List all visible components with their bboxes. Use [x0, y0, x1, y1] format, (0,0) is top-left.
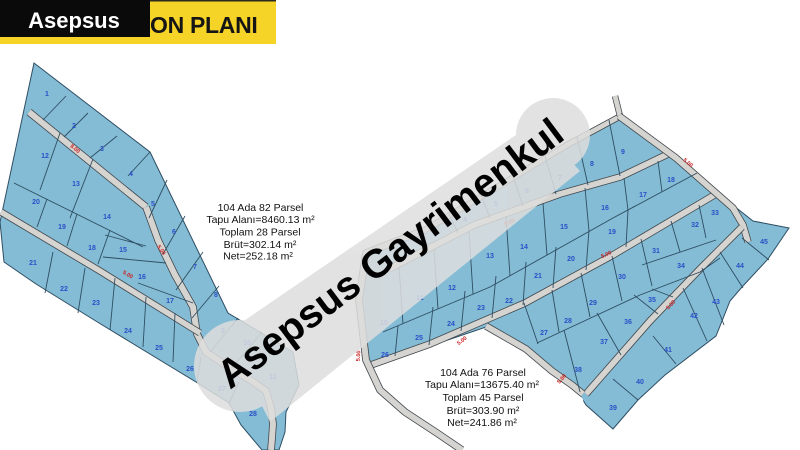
svg-text:16: 16: [601, 205, 609, 212]
svg-text:32: 32: [691, 222, 699, 229]
svg-text:4: 4: [129, 171, 133, 178]
svg-text:39: 39: [609, 405, 617, 412]
svg-text:37: 37: [600, 339, 608, 346]
svg-text:44: 44: [736, 263, 744, 270]
svg-text:Toplam 28 Parsel: Toplam 28 Parsel: [219, 227, 300, 239]
svg-text:28: 28: [564, 318, 572, 325]
svg-text:31: 31: [652, 248, 660, 255]
svg-text:14: 14: [103, 214, 111, 221]
svg-text:24: 24: [447, 321, 455, 328]
svg-text:45: 45: [760, 239, 768, 246]
svg-text:23: 23: [477, 305, 485, 312]
svg-text:14: 14: [520, 244, 528, 251]
svg-text:ON PLANI: ON PLANI: [150, 12, 258, 38]
svg-text:Asepsus: Asepsus: [28, 8, 120, 33]
svg-text:104 Ada 82 Parsel: 104 Ada 82 Parsel: [218, 202, 304, 214]
svg-text:26: 26: [381, 352, 389, 359]
svg-text:24: 24: [124, 328, 132, 335]
svg-text:15: 15: [560, 224, 568, 231]
svg-text:13: 13: [486, 253, 494, 260]
svg-text:17: 17: [166, 298, 174, 305]
svg-text:Brüt=303.90 m²: Brüt=303.90 m²: [447, 405, 520, 417]
svg-text:Tapu Alanı=13675.40 m²: Tapu Alanı=13675.40 m²: [425, 379, 540, 391]
svg-text:42: 42: [690, 313, 698, 320]
svg-text:8: 8: [590, 161, 594, 168]
svg-text:18: 18: [667, 177, 675, 184]
svg-text:18: 18: [88, 245, 96, 252]
svg-text:20: 20: [567, 256, 575, 263]
svg-text:104 Ada 76 Parsel: 104 Ada 76 Parsel: [440, 367, 526, 379]
svg-text:34: 34: [677, 263, 685, 270]
svg-text:Toplam 45 Parsel: Toplam 45 Parsel: [442, 392, 523, 404]
svg-text:7: 7: [193, 264, 197, 271]
svg-text:15: 15: [119, 247, 127, 254]
svg-text:8: 8: [214, 292, 218, 299]
svg-text:3: 3: [100, 146, 104, 153]
svg-text:22: 22: [505, 298, 513, 305]
svg-text:6: 6: [172, 229, 176, 236]
svg-text:19: 19: [608, 229, 616, 236]
svg-text:17: 17: [639, 192, 647, 199]
svg-text:Net=252.18 m²: Net=252.18 m²: [223, 251, 293, 263]
svg-text:40: 40: [636, 379, 644, 386]
svg-text:12: 12: [448, 285, 456, 292]
svg-text:1: 1: [45, 91, 49, 98]
svg-text:41: 41: [664, 347, 672, 354]
svg-text:9: 9: [621, 149, 625, 156]
svg-text:20: 20: [32, 199, 40, 206]
svg-text:13: 13: [72, 181, 80, 188]
svg-text:30: 30: [618, 274, 626, 281]
svg-text:2: 2: [72, 123, 76, 130]
svg-text:21: 21: [29, 260, 37, 267]
svg-text:Brüt=302.14 m²: Brüt=302.14 m²: [224, 239, 297, 251]
svg-text:29: 29: [589, 300, 597, 307]
svg-text:19: 19: [58, 224, 66, 231]
svg-text:22: 22: [60, 286, 68, 293]
svg-text:28: 28: [249, 411, 257, 418]
svg-text:27: 27: [540, 330, 548, 337]
svg-text:25: 25: [415, 335, 423, 342]
svg-text:33: 33: [711, 210, 719, 217]
svg-text:23: 23: [92, 300, 100, 307]
svg-text:43: 43: [712, 299, 720, 306]
svg-text:Tapu Alanı=8460.13 m²: Tapu Alanı=8460.13 m²: [206, 214, 315, 226]
svg-text:26: 26: [186, 366, 194, 373]
svg-text:Net=241.86 m²: Net=241.86 m²: [447, 417, 517, 429]
svg-text:36: 36: [624, 319, 632, 326]
svg-text:38: 38: [574, 367, 582, 374]
svg-text:5: 5: [151, 201, 155, 208]
svg-text:25: 25: [155, 345, 163, 352]
svg-text:12: 12: [41, 153, 49, 160]
svg-text:16: 16: [138, 274, 146, 281]
svg-text:35: 35: [648, 297, 656, 304]
svg-text:21: 21: [534, 273, 542, 280]
svg-text:5.00: 5.00: [356, 350, 363, 361]
